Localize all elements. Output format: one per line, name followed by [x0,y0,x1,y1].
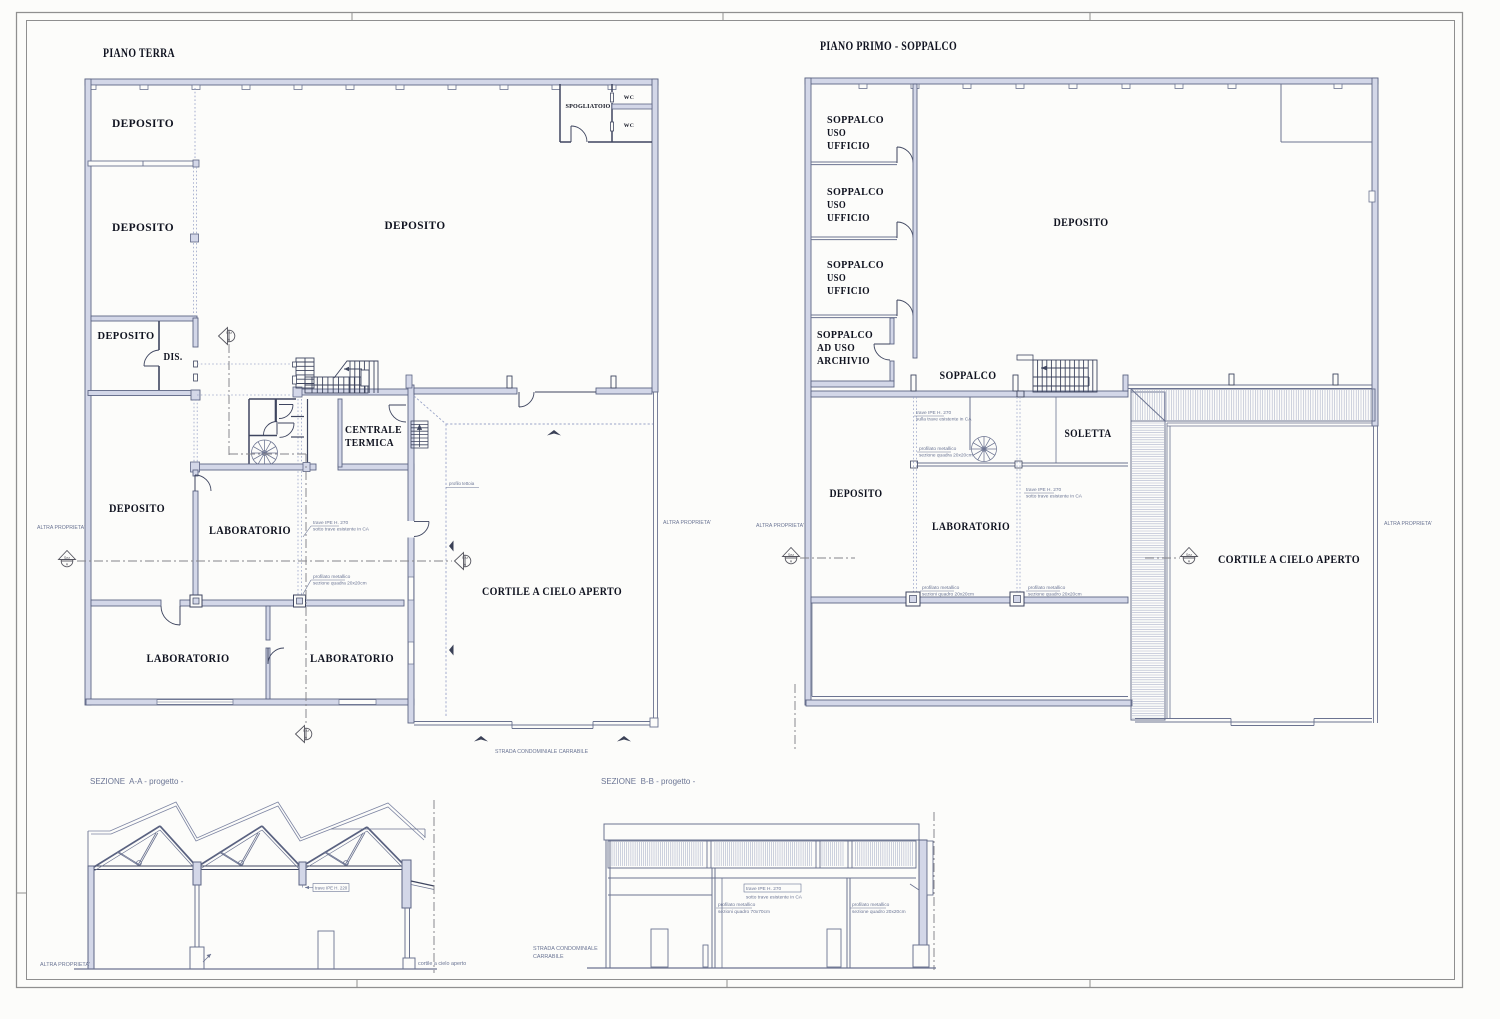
svg-text:profilo tettoia: profilo tettoia [449,481,475,486]
svg-text:LABORATORIO: LABORATORIO [310,653,394,665]
svg-text:LABORATORIO: LABORATORIO [209,525,291,537]
svg-text:sulla trave esistente in CA: sulla trave esistente in CA [916,417,972,423]
svg-text:WC: WC [624,123,634,129]
svg-text:USO: USO [827,199,846,211]
svg-text:sotto trave esistente in CA: sotto trave esistente in CA [746,895,803,901]
svg-text:Sez: Sez [226,331,232,335]
svg-text:sezioni quadro 20x20cm: sezioni quadro 20x20cm [922,592,974,598]
svg-text:sezione quadro 20x20cm: sezione quadro 20x20cm [1028,592,1082,598]
svg-text:DEPOSITO: DEPOSITO [109,503,165,515]
svg-text:profilato metallico: profilato metallico [852,902,890,908]
svg-text:CARRABILE: CARRABILE [533,954,564,960]
svg-text:SEZIONE B-B - progetto -: SEZIONE B-B - progetto - [601,777,696,786]
svg-text:Sez: Sez [788,553,794,557]
svg-text:profilato metallico: profilato metallico [922,585,960,591]
svg-text:WC: WC [624,95,634,101]
svg-text:UFFICIO: UFFICIO [827,140,870,152]
svg-text:TERMICA: TERMICA [345,437,394,449]
svg-text:DEPOSITO: DEPOSITO [98,330,155,342]
svg-text:DEPOSITO: DEPOSITO [112,222,174,234]
svg-text:DEPOSITO: DEPOSITO [1054,217,1109,229]
svg-text:profilato metallico: profilato metallico [1028,585,1066,591]
svg-text:sezione quadra 20x20cm: sezione quadra 20x20cm [919,453,973,459]
svg-text:LABORATORIO: LABORATORIO [147,653,230,665]
svg-text:ALTRA PROPRIETA': ALTRA PROPRIETA' [756,523,804,529]
svg-text:sezione quadra 20x20cm: sezione quadra 20x20cm [313,581,367,587]
svg-text:LABORATORIO: LABORATORIO [932,521,1010,533]
svg-text:ALTRA PROPRIETA': ALTRA PROPRIETA' [40,962,90,968]
svg-text:CENTRALE: CENTRALE [345,424,402,436]
svg-text:STRADA CONDOMINIALE CARRABILE: STRADA CONDOMINIALE CARRABILE [495,749,589,755]
svg-text:sotto trave esistente in CA: sotto trave esistente in CA [1026,494,1083,500]
svg-text:trave IPE H. 270: trave IPE H. 270 [1026,487,1062,493]
svg-text:SPOGLIATOIO: SPOGLIATOIO [566,103,611,110]
svg-text:Sez: Sez [64,556,70,560]
svg-text:UFFICIO: UFFICIO [827,212,870,224]
svg-text:SEZIONE A-A - progetto -: SEZIONE A-A - progetto - [90,777,184,786]
svg-text:profilato metallico: profilato metallico [313,574,351,580]
svg-text:sezioni quadro 70x70cm: sezioni quadro 70x70cm [718,909,770,915]
svg-text:USO: USO [827,127,846,139]
svg-text:ALTRA PROPRIETA': ALTRA PROPRIETA' [663,520,711,526]
svg-text:ARCHIVIO: ARCHIVIO [817,355,870,367]
svg-text:sezione quadro 20x20cm: sezione quadro 20x20cm [852,909,906,915]
svg-text:cortile a cielo aperto: cortile a cielo aperto [418,961,466,967]
svg-text:DEPOSITO: DEPOSITO [830,488,883,500]
svg-text:trave IPE H. 270: trave IPE H. 270 [916,410,952,416]
svg-text:ALTRA PROPRIETA': ALTRA PROPRIETA' [37,525,85,531]
svg-text:sotto trave esistente in CA: sotto trave esistente in CA [313,527,370,533]
svg-text:STRADA CONDOMINIALE: STRADA CONDOMINIALE [533,946,598,952]
svg-text:AD USO: AD USO [817,342,855,354]
svg-text:SOPPALCO: SOPPALCO [817,329,873,341]
svg-text:SOPPALCO: SOPPALCO [827,186,884,198]
svg-text:USO: USO [827,272,846,284]
svg-text:Sez: Sez [1186,553,1192,557]
svg-text:SOPPALCO: SOPPALCO [827,114,884,126]
svg-text:trave IPE H. 270: trave IPE H. 270 [313,520,349,526]
svg-text:Sez: Sez [462,556,468,560]
svg-text:UFFICIO: UFFICIO [827,285,870,297]
svg-text:profilato metallico: profilato metallico [919,446,957,452]
svg-text:DIS.: DIS. [164,351,183,363]
svg-text:SOLETTA: SOLETTA [1065,428,1112,440]
svg-text:CORTILE A CIELO APERTO: CORTILE A CIELO APERTO [1218,552,1360,566]
svg-text:PIANO TERRA: PIANO TERRA [103,46,175,60]
svg-text:trave IPE H. 220: trave IPE H. 220 [315,886,348,891]
svg-text:ALTRA PROPRIETA': ALTRA PROPRIETA' [1384,521,1432,527]
svg-text:profilato metallico: profilato metallico [718,902,756,908]
svg-text:DEPOSITO: DEPOSITO [385,220,446,232]
svg-text:DEPOSITO: DEPOSITO [112,118,174,130]
svg-text:PIANO PRIMO - SOPPALCO: PIANO PRIMO - SOPPALCO [820,39,957,53]
svg-text:Sez: Sez [303,729,309,733]
svg-text:SOPPALCO: SOPPALCO [827,259,884,271]
svg-text:SOPPALCO: SOPPALCO [940,370,997,382]
svg-text:trave IPE H. 270: trave IPE H. 270 [746,886,782,892]
svg-text:CORTILE A CIELO APERTO: CORTILE A CIELO APERTO [482,584,622,598]
